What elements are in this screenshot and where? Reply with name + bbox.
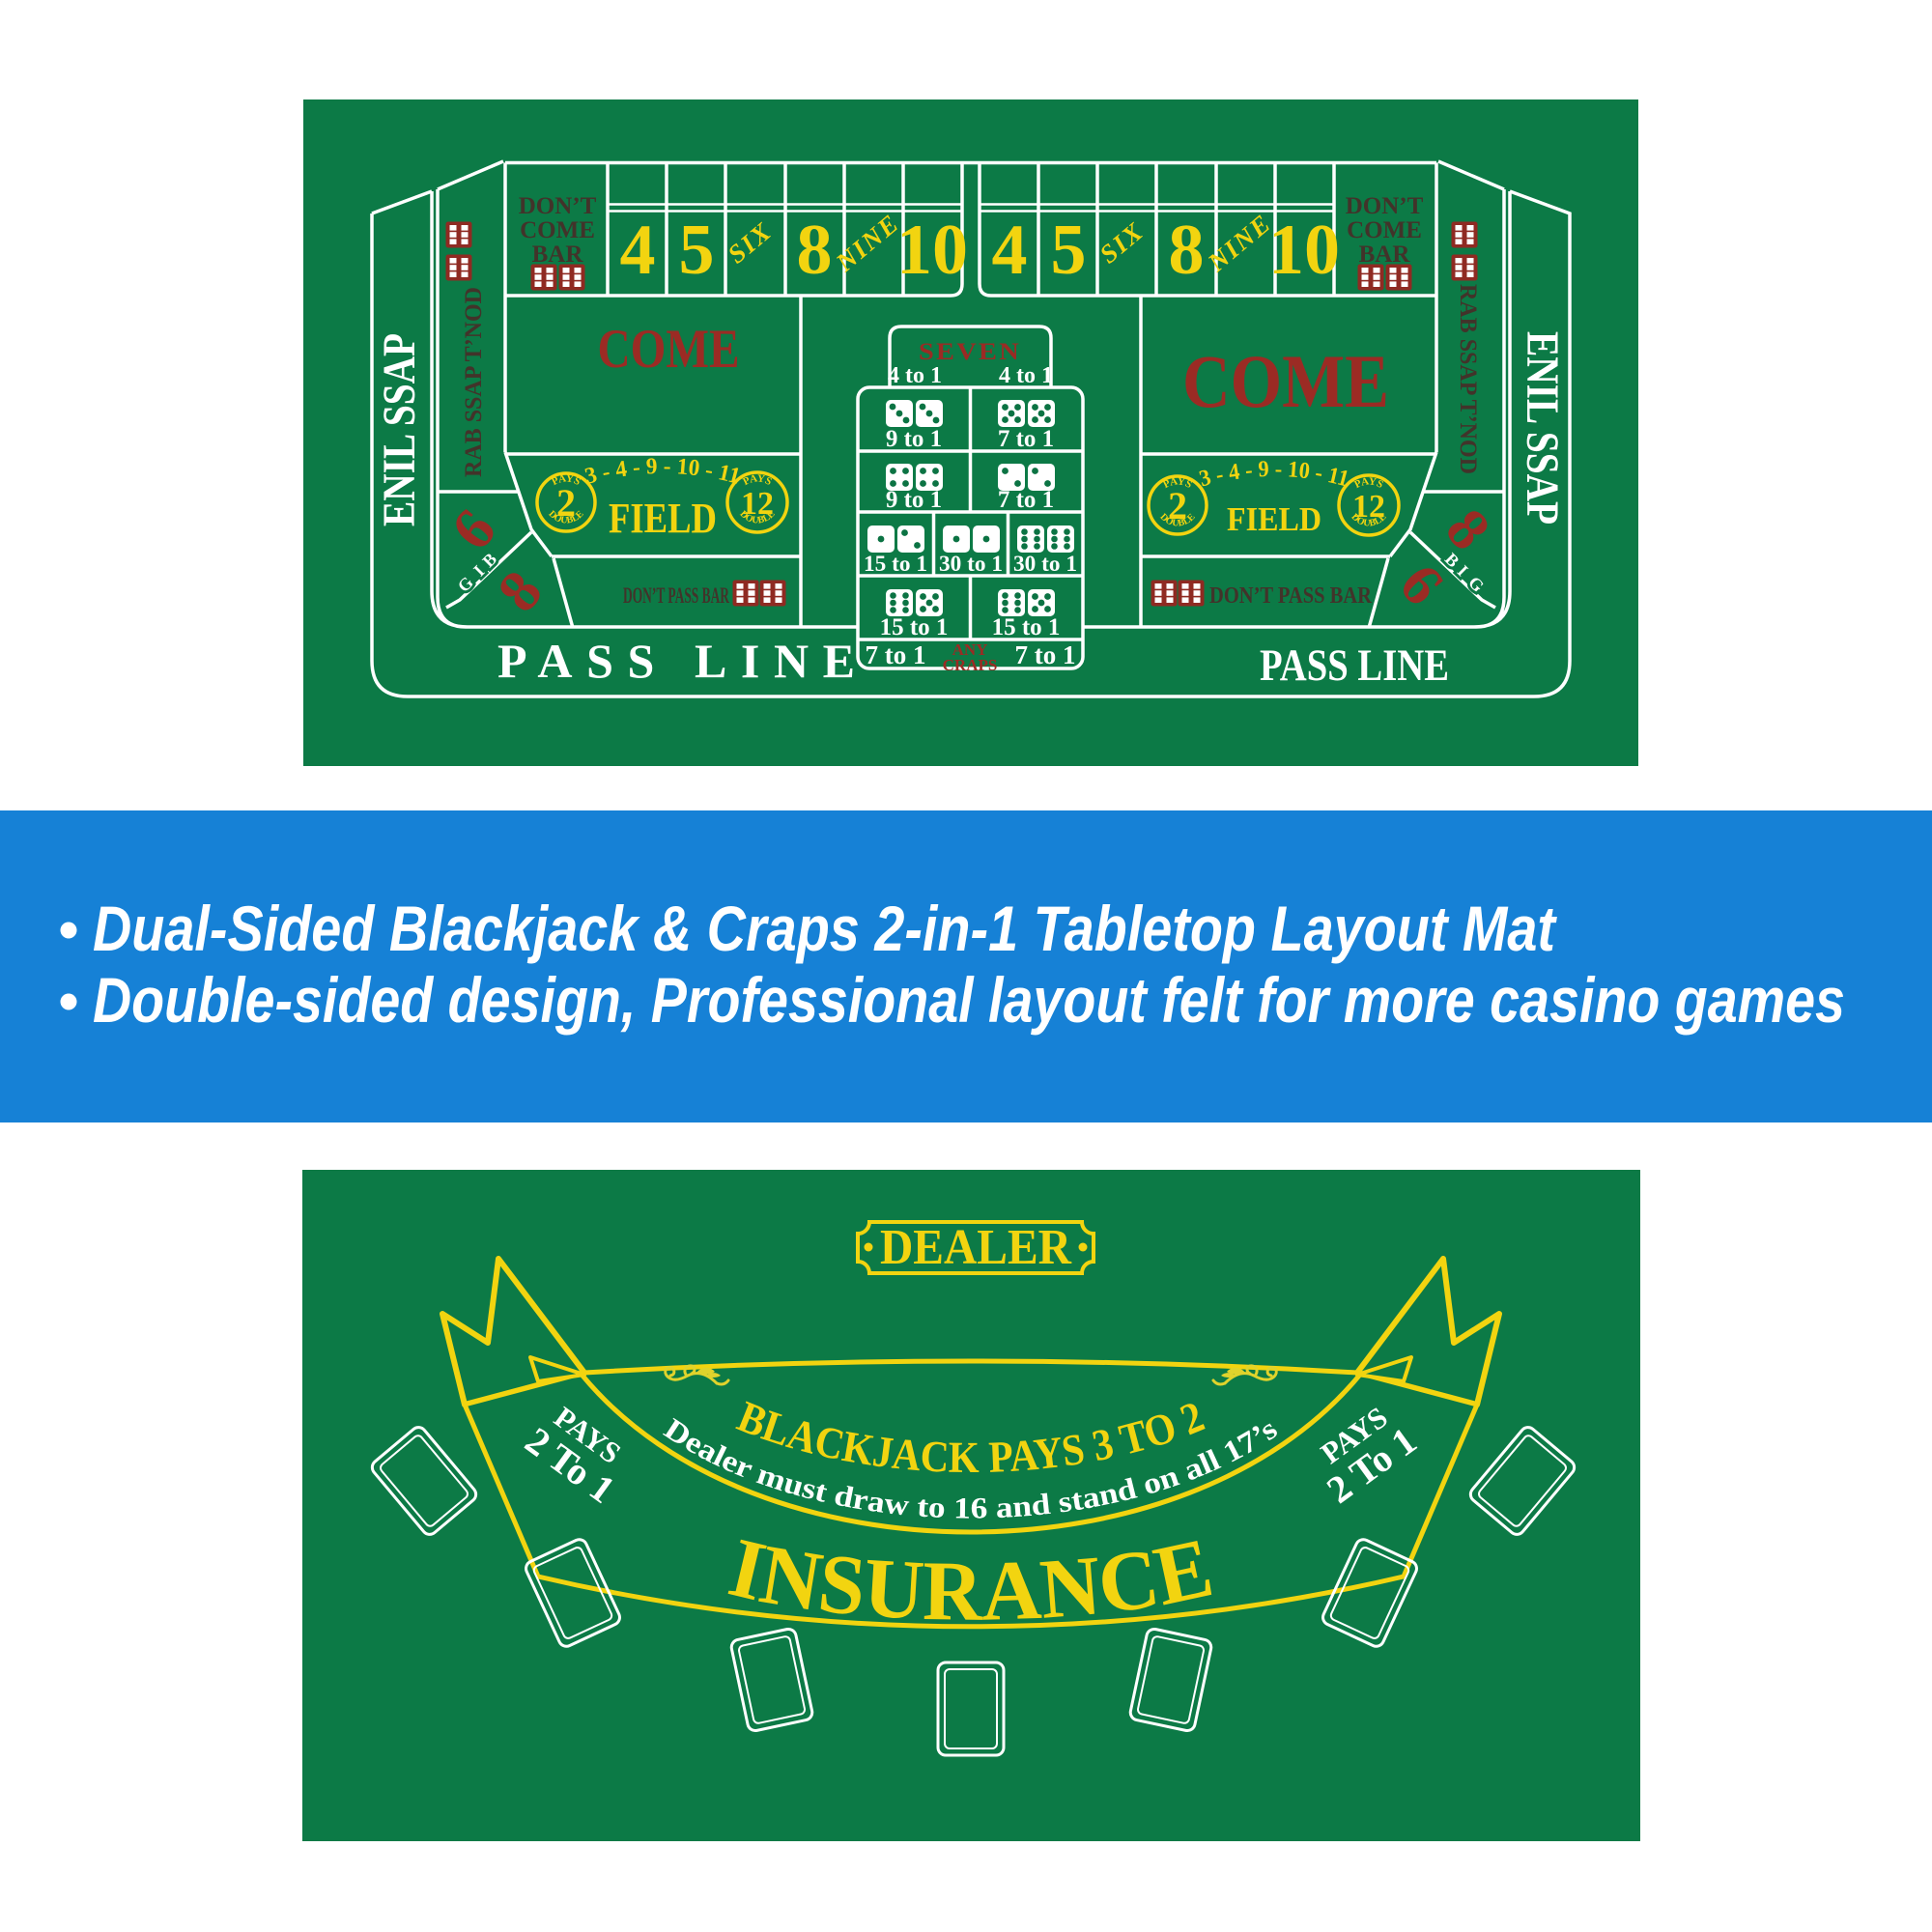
svg-text:DEALER: DEALER <box>880 1220 1072 1275</box>
svg-text:4: 4 <box>992 211 1028 290</box>
svg-text:30 to 1: 30 to 1 <box>1013 552 1077 576</box>
svg-text:8: 8 <box>797 211 833 290</box>
svg-text:RAB SSAP T’NOD: RAB SSAP T’NOD <box>461 287 487 477</box>
svg-text:30 to 1: 30 to 1 <box>939 552 1003 576</box>
svg-text:7 to 1: 7 to 1 <box>1015 640 1076 669</box>
svg-text:9 to 1: 9 to 1 <box>886 487 942 513</box>
svg-text:DON’T PASS BAR: DON’T PASS BAR <box>1209 583 1373 609</box>
svg-text:4: 4 <box>620 211 656 290</box>
svg-text:5: 5 <box>679 211 715 290</box>
svg-text:15 to 1: 15 to 1 <box>992 614 1061 640</box>
svg-text:PASS LINE: PASS LINE <box>1260 640 1449 691</box>
svg-text:15 to 1: 15 to 1 <box>864 552 927 576</box>
svg-text:5: 5 <box>1051 211 1087 290</box>
svg-text:COME: COME <box>598 319 740 380</box>
svg-text:FIELD: FIELD <box>1227 500 1321 538</box>
svg-text:4 to 1: 4 to 1 <box>888 363 942 388</box>
svg-text:15 to 1: 15 to 1 <box>880 614 949 640</box>
svg-text:7 to 1: 7 to 1 <box>998 487 1054 513</box>
svg-text:FIELD: FIELD <box>609 495 717 542</box>
svg-text:10: 10 <box>1268 211 1340 290</box>
svg-text:ENIL SSAP: ENIL SSAP <box>1517 331 1568 525</box>
svg-text:COME: COME <box>1182 339 1389 423</box>
svg-text:DON’T: DON’T <box>519 193 597 219</box>
svg-text:PASS LINE: PASS LINE <box>497 634 855 688</box>
svg-text:DON’T PASS BAR: DON’T PASS BAR <box>623 583 729 608</box>
svg-text:COME: COME <box>520 217 595 243</box>
svg-text:4 to 1: 4 to 1 <box>999 363 1053 388</box>
svg-text:RAB SSAP T’NOD: RAB SSAP T’NOD <box>1455 284 1481 474</box>
svg-text:BAR: BAR <box>1359 241 1411 268</box>
svg-text:CRAPS: CRAPS <box>943 656 998 674</box>
svg-text:8: 8 <box>1169 211 1205 290</box>
svg-text:10: 10 <box>896 211 968 290</box>
svg-text:ENIL SSAP: ENIL SSAP <box>374 333 425 526</box>
svg-text:7 to 1: 7 to 1 <box>866 640 926 669</box>
svg-text:Dual-Sided Blackjack & Craps 2: Dual-Sided Blackjack & Craps 2-in-1 Tabl… <box>93 893 1558 964</box>
svg-text:9 to 1: 9 to 1 <box>886 426 942 452</box>
svg-text:DON’T: DON’T <box>1346 193 1424 219</box>
svg-text:7 to 1: 7 to 1 <box>998 426 1054 452</box>
svg-text:COME: COME <box>1347 217 1422 243</box>
svg-text:SEVEN: SEVEN <box>919 339 1021 365</box>
svg-text:Double-sided design, Professio: Double-sided design, Professional layout… <box>93 964 1845 1036</box>
svg-text:BAR: BAR <box>532 241 584 268</box>
